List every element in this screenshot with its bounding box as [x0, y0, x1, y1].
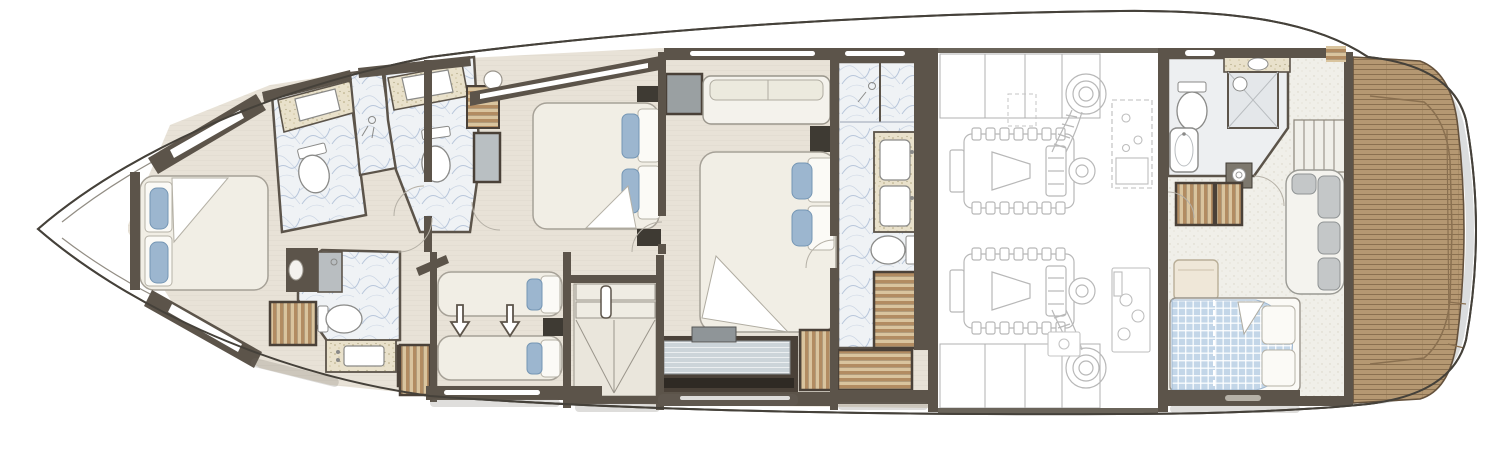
- wood-grating: [400, 345, 430, 395]
- tv-unit: [692, 327, 736, 342]
- crew-bed: [1170, 298, 1300, 392]
- toilet: [318, 305, 362, 333]
- hull-window: [444, 390, 540, 395]
- stair-tread: [576, 284, 655, 300]
- pillow-white: [1262, 350, 1295, 386]
- wood-step: [1326, 46, 1346, 62]
- partition-wall: [658, 52, 666, 216]
- stair-handrail: [601, 286, 611, 318]
- pillow-blue: [622, 114, 639, 158]
- basin-round: [484, 71, 502, 89]
- partition-wall: [424, 60, 432, 182]
- partition-wall: [830, 52, 838, 236]
- wood-storage-box: [1176, 183, 1214, 225]
- faucet-icon: [336, 350, 340, 354]
- crew-sofa: [1286, 170, 1344, 294]
- vanity-sink: [880, 140, 910, 180]
- sofa-back-cushion: [710, 80, 823, 100]
- crew-bottom-wall: [1300, 396, 1346, 406]
- vanity-sink: [344, 346, 384, 366]
- partition-wall: [658, 244, 666, 254]
- engine-starboard: [950, 248, 1095, 334]
- transom-bulkhead: [1344, 52, 1353, 406]
- bottom-wall-bathroom: [832, 390, 930, 404]
- nightstand: [637, 86, 661, 102]
- wood-grating: [270, 302, 316, 345]
- pillow-white: [1262, 306, 1295, 344]
- basin-round: [1233, 77, 1247, 91]
- pillow-white: [638, 166, 660, 219]
- floor-plan-figure: [0, 0, 1500, 461]
- pillow-blue: [150, 188, 168, 229]
- vanity-sink: [880, 186, 910, 226]
- dresser-base: [660, 378, 794, 388]
- pillow-blue: [792, 210, 812, 246]
- partition-wall: [571, 275, 660, 283]
- partition-wall: [563, 252, 571, 408]
- equipment-small-box: [1048, 332, 1080, 356]
- vanity-sink: [1248, 58, 1268, 70]
- partition-wall: [830, 268, 838, 410]
- faucet-icon: [910, 150, 914, 154]
- pillow-blue: [150, 242, 168, 283]
- faucet-icon: [910, 196, 914, 200]
- hatch-handle: [1225, 395, 1261, 401]
- vanity-desk: [474, 133, 500, 182]
- hull-window: [845, 51, 905, 56]
- crew-stairs: [1294, 120, 1348, 172]
- dresser-glass-front: [664, 341, 790, 374]
- wood-storage-box: [1216, 183, 1242, 225]
- master-bathroom: [838, 62, 916, 390]
- pillow-white: [541, 276, 560, 313]
- companionway-stairs: [574, 284, 656, 396]
- deck-hatch: [1185, 50, 1215, 56]
- wood-grating: [874, 272, 916, 348]
- engine-room-top-wall: [938, 48, 1158, 53]
- pillow-blue: [792, 163, 812, 199]
- stair-tread: [576, 302, 655, 318]
- floor-plan-svg: [0, 0, 1500, 461]
- crew-seat: [1174, 260, 1218, 300]
- vip-cabin-forward: [140, 176, 268, 290]
- shower-pan: [318, 252, 342, 292]
- bathroom-cabinet-wall: [914, 60, 928, 350]
- engine-bulkhead-aft: [1158, 48, 1168, 412]
- engine-bulkhead-forward: [928, 48, 938, 412]
- bottom-wall-stairs: [571, 396, 660, 404]
- master-cabinet: [666, 74, 702, 114]
- vip-headboard-wall: [130, 172, 140, 290]
- hull-window: [690, 51, 815, 56]
- wood-grating: [838, 350, 912, 390]
- engine-room-bottom-wall: [938, 408, 1158, 413]
- faucet-icon: [336, 358, 340, 362]
- engine-port: [950, 128, 1095, 214]
- cabinet-basin: [289, 260, 303, 280]
- equipment-box-circles: [1112, 268, 1150, 352]
- aft-teak-platform: [1353, 57, 1470, 403]
- pillow-blue: [527, 279, 542, 310]
- teak-deck: [1353, 57, 1464, 403]
- twin-nightstand: [543, 318, 565, 336]
- pillow-white: [541, 340, 560, 377]
- pillow-white: [638, 109, 660, 162]
- toilet: [1177, 82, 1207, 130]
- bathtub: [1170, 128, 1198, 172]
- partition-wall: [656, 255, 664, 410]
- toilet: [871, 236, 916, 264]
- pillow-blue: [527, 343, 542, 374]
- nightstand: [810, 126, 832, 152]
- partition-wall: [430, 252, 437, 402]
